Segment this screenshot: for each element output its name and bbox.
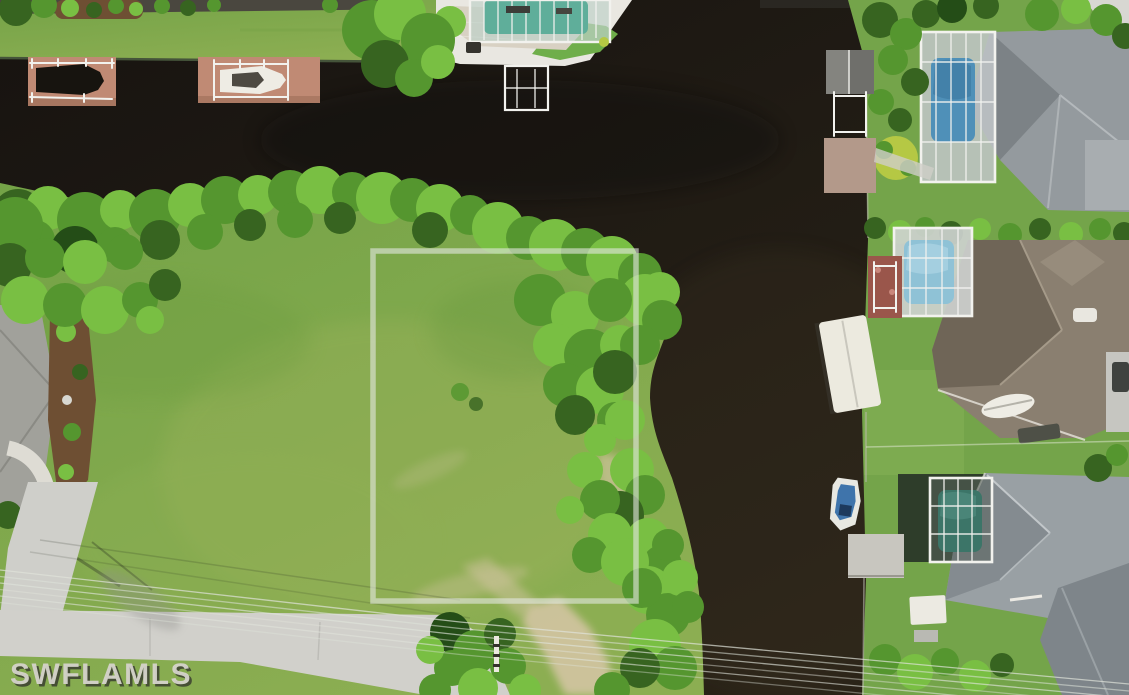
- east-seawall: [863, 577, 864, 695]
- north-shore-neighborhood-part: [86, 2, 102, 18]
- swimming-pool-teal: [484, 0, 588, 34]
- screened-pool-enclosure: [921, 32, 995, 182]
- hedge-row-part: [1029, 218, 1051, 240]
- boat-cockpit: [839, 504, 852, 517]
- north-shore-neighborhood-part: [129, 2, 143, 16]
- lone-shrub: [469, 397, 483, 411]
- trees-north-band-part: [412, 212, 448, 248]
- house-left-edge-part: [63, 423, 81, 441]
- bird-bath: [62, 395, 72, 405]
- distant-seawall-sliver: [760, 0, 850, 8]
- lone-shrub: [451, 383, 469, 401]
- trees-north-band-part: [140, 220, 180, 260]
- dock-west-with-boat: [28, 57, 116, 106]
- trees-east-shore-part: [672, 591, 704, 623]
- trees-east-shore-part: [556, 496, 584, 524]
- hedge-northwest-part: [912, 0, 940, 28]
- small-shrub: [599, 37, 609, 47]
- dock-platform: [824, 138, 876, 193]
- watermark: SWFLAMLS SWFLAMLS: [10, 658, 194, 694]
- utility-pole: [493, 636, 500, 672]
- house-left-edge-part: [58, 464, 74, 480]
- trees-north-band-part: [324, 202, 356, 234]
- house-left-edge-part: [72, 364, 88, 380]
- patio-furniture: [556, 8, 572, 14]
- house-top-right: [824, 0, 1129, 212]
- trees-left-edge-part: [43, 283, 87, 327]
- trees-left-edge-part: [63, 240, 107, 284]
- trees-left-edge-part: [149, 269, 181, 301]
- aerial-photo: SWFLAMLS SWFLAMLS: [0, 0, 1129, 695]
- north-shore-neighborhood-part: [180, 0, 196, 16]
- grill: [466, 42, 481, 53]
- parked-car: [1112, 362, 1129, 392]
- brick-dock-head-part: [889, 289, 895, 295]
- trees-left-edge-part: [1, 276, 49, 324]
- trees-east-shore-part: [605, 400, 645, 440]
- trees-left-edge-part: [136, 306, 164, 334]
- trees-north-band-part: [277, 202, 313, 238]
- hedge-bottom-part: [931, 648, 959, 676]
- hedge-northwest-part: [901, 68, 929, 96]
- patio-furniture: [506, 6, 530, 13]
- house-bottom-right-part: [1106, 444, 1128, 466]
- trees-east-shore-part: [662, 560, 698, 596]
- utility-pole-part: [493, 654, 500, 657]
- hedge-northwest-part: [878, 45, 908, 75]
- screened-pool-enclosure: [930, 478, 992, 562]
- screened-pool-enclosure: [470, 0, 610, 42]
- trees-northeast-cluster-part: [588, 278, 632, 322]
- concrete-dock: [848, 534, 904, 578]
- brick-dock-head-part: [875, 267, 881, 273]
- trees-left-edge-part: [25, 238, 65, 278]
- hedge-row-part: [1089, 218, 1111, 240]
- hedge-northwest-part: [888, 108, 912, 132]
- trees-left-edge-part: [107, 234, 143, 270]
- aerial-photo-canvas: SWFLAMLS SWFLAMLS: [0, 0, 1129, 695]
- trees-east-shore-part: [593, 350, 637, 394]
- trees-left-edge-part: [81, 286, 129, 334]
- white-shed: [909, 595, 946, 625]
- screened-pool-enclosure: [894, 228, 972, 316]
- boat-canopy-dock-part: [826, 50, 849, 94]
- dock-east-with-boatlift: [198, 57, 320, 103]
- spa-structure: [1073, 308, 1097, 322]
- trees-north-band-part: [234, 209, 266, 241]
- hedge-row-part: [864, 217, 886, 239]
- trees-east-shore-part: [652, 529, 684, 561]
- brick-dock-head: [868, 256, 902, 318]
- watermark-text: SWFLAMLS: [10, 658, 192, 691]
- utility-pole-part: [493, 644, 500, 647]
- ac-unit: [914, 630, 938, 642]
- trees-north-band-part: [187, 214, 223, 250]
- northwest-tree-clump-part: [421, 45, 455, 79]
- utility-pole-part: [493, 664, 500, 667]
- roof-annex: [1085, 140, 1129, 210]
